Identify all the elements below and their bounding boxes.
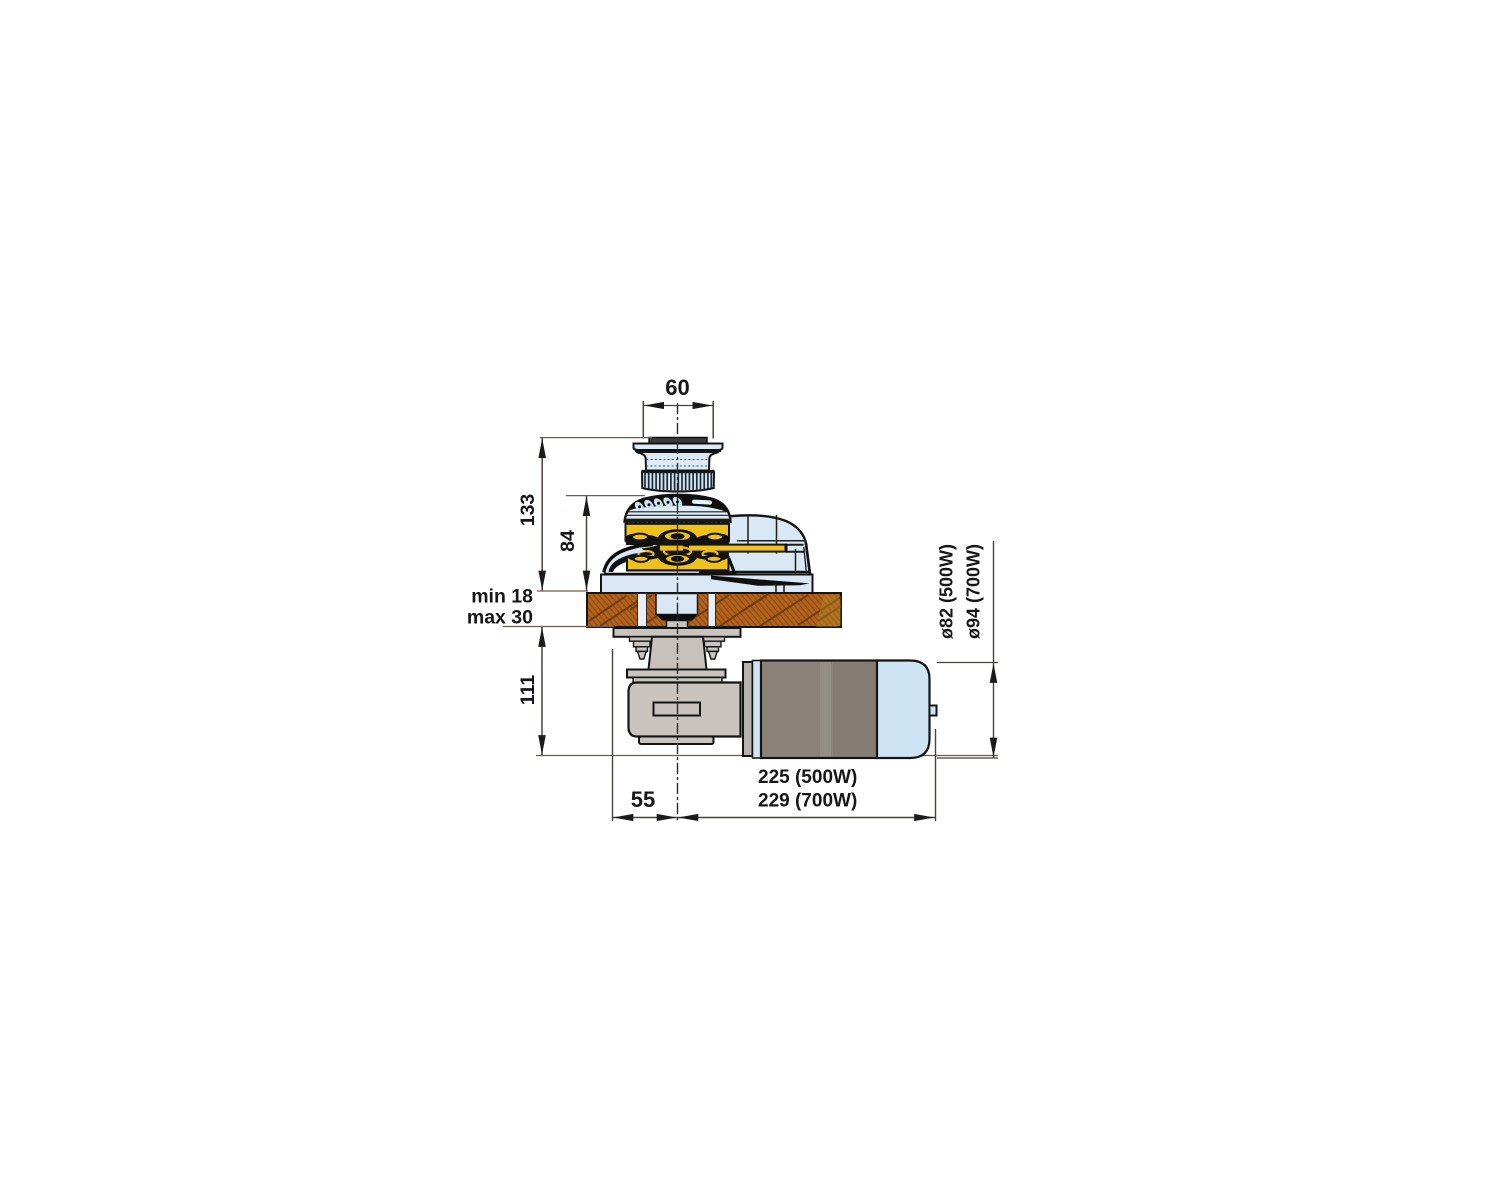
svg-text:ø82 (500W): ø82 (500W) [937, 544, 957, 639]
svg-text:55: 55 [631, 787, 655, 812]
svg-text:225 (500W): 225 (500W) [758, 767, 857, 788]
svg-text:84: 84 [557, 530, 579, 552]
svg-text:max 30: max 30 [467, 607, 533, 629]
svg-text:133: 133 [517, 494, 539, 527]
svg-text:60: 60 [665, 375, 689, 400]
svg-text:229 (700W): 229 (700W) [758, 791, 857, 812]
svg-text:min 18: min 18 [471, 586, 533, 608]
svg-text:ø94 (700W): ø94 (700W) [964, 544, 984, 639]
svg-text:111: 111 [517, 675, 539, 706]
